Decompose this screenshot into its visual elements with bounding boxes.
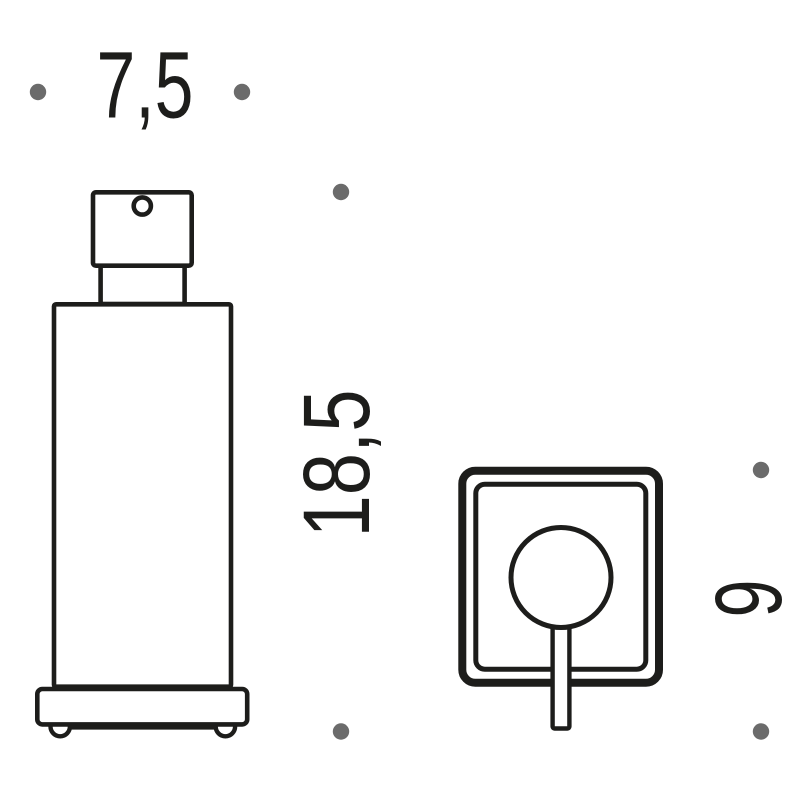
marker-dot [333, 723, 349, 739]
marker-dot [30, 84, 46, 100]
dimension-diagram: 7,5 18,5 9 [0, 0, 800, 800]
nozzle-hole-icon [134, 197, 151, 214]
marker-dot [753, 723, 769, 739]
marker-dot [753, 462, 769, 478]
marker-dot [234, 84, 250, 100]
technical-drawing-canvas: 7,5 18,5 9 [0, 0, 800, 800]
pump-head-circle [511, 528, 611, 628]
front-view [37, 192, 247, 736]
top-view [462, 471, 659, 729]
height-dimension-label: 18,5 [284, 390, 390, 538]
bottle-body [54, 304, 231, 686]
depth-dimension-label: 9 [696, 580, 800, 618]
marker-dot [333, 184, 349, 200]
width-dimension-label: 7,5 [97, 33, 194, 139]
base-plate [37, 689, 247, 724]
